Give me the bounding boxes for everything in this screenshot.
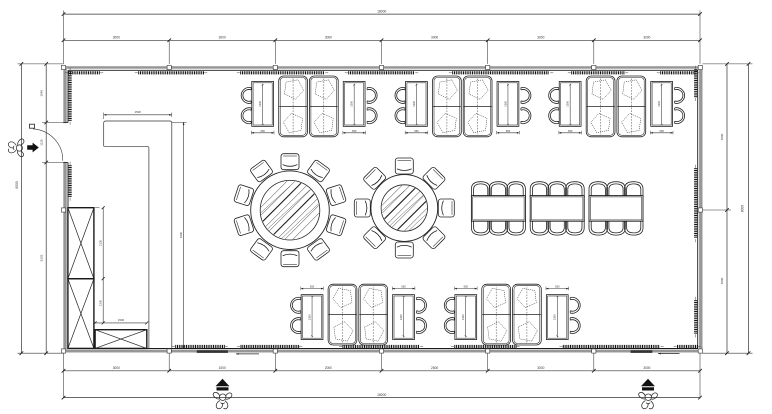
svg-text:650: 650 [555, 285, 560, 289]
svg-text:2000: 2000 [325, 366, 332, 370]
svg-text:2130: 2130 [98, 239, 102, 246]
svg-text:1300: 1300 [412, 100, 416, 106]
svg-text:18000: 18000 [377, 393, 386, 397]
svg-text:3000: 3000 [113, 366, 120, 370]
svg-text:1135: 1135 [40, 139, 44, 146]
svg-text:1540: 1540 [40, 90, 44, 97]
svg-text:1300: 1300 [553, 314, 557, 320]
svg-text:6300: 6300 [179, 231, 183, 238]
svg-text:1500: 1500 [118, 318, 125, 322]
svg-text:1300: 1300 [399, 314, 403, 320]
svg-text:18000: 18000 [377, 10, 386, 14]
svg-text:3000: 3000 [325, 36, 332, 40]
svg-text:3000: 3000 [113, 36, 120, 40]
svg-text:2600: 2600 [431, 366, 438, 370]
svg-text:1300: 1300 [461, 314, 465, 320]
svg-text:3000: 3000 [219, 36, 226, 40]
svg-text:4000: 4000 [720, 133, 724, 140]
svg-text:1000: 1000 [219, 366, 226, 370]
svg-text:650: 650 [464, 285, 469, 289]
svg-text:3000: 3000 [643, 366, 650, 370]
svg-text:3000: 3000 [431, 36, 438, 40]
svg-text:650: 650 [310, 285, 315, 289]
svg-text:5325: 5325 [40, 254, 44, 261]
svg-text:650: 650 [506, 129, 511, 133]
svg-text:8000: 8000 [741, 205, 745, 213]
svg-text:1300: 1300 [566, 100, 570, 106]
svg-text:3000: 3000 [537, 36, 544, 40]
svg-text:650: 650 [568, 129, 573, 133]
svg-text:3000: 3000 [643, 36, 650, 40]
svg-text:8000: 8000 [15, 181, 19, 189]
svg-text:1300: 1300 [503, 100, 507, 106]
svg-text:650: 650 [261, 129, 266, 133]
svg-text:650: 650 [414, 129, 419, 133]
svg-text:1300: 1300 [258, 100, 262, 106]
svg-text:650: 650 [401, 285, 406, 289]
svg-text:1500: 1500 [135, 110, 142, 114]
svg-text:650: 650 [352, 129, 357, 133]
svg-text:1300: 1300 [308, 314, 312, 320]
svg-text:650: 650 [660, 129, 665, 133]
svg-text:3000: 3000 [537, 366, 544, 370]
svg-text:1300: 1300 [657, 100, 661, 106]
svg-text:4000: 4000 [720, 277, 724, 284]
svg-text:1300: 1300 [350, 100, 354, 106]
svg-text:1330: 1330 [98, 299, 102, 306]
